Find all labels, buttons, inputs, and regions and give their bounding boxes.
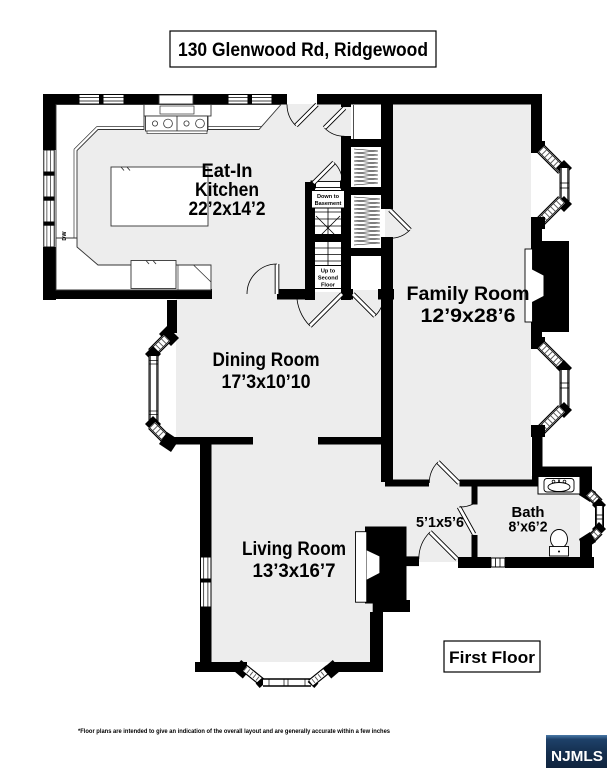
svg-text:DW: DW [62, 231, 68, 241]
svg-text:Basement: Basement [315, 201, 342, 207]
svg-text:Family Room: Family Room [407, 284, 530, 305]
svg-text:130 Glenwood Rd, Ridgewood: 130 Glenwood Rd, Ridgewood [178, 40, 428, 61]
svg-text:First Floor: First Floor [449, 649, 536, 667]
svg-text:5’1x5’6: 5’1x5’6 [416, 514, 464, 531]
svg-text:*Floor plans are intended to g: *Floor plans are intended to give an ind… [78, 729, 391, 735]
svg-text:Dining Room: Dining Room [213, 350, 320, 371]
svg-text:Second: Second [318, 276, 339, 282]
svg-text:22’2x14’2: 22’2x14’2 [189, 199, 266, 220]
svg-text:13’3x16’7: 13’3x16’7 [253, 561, 336, 582]
svg-text:Floor: Floor [321, 283, 336, 289]
svg-text:8’x6’2: 8’x6’2 [509, 519, 548, 536]
svg-text:17’3x10’10: 17’3x10’10 [222, 372, 311, 393]
svg-text:Eat-In: Eat-In [202, 161, 253, 182]
svg-text:Up to: Up to [321, 269, 336, 275]
svg-text:NJMLS: NJMLS [551, 748, 603, 765]
svg-text:12’9x28’6: 12’9x28’6 [421, 306, 516, 327]
svg-text:Kitchen: Kitchen [195, 180, 259, 201]
svg-text:Living Room: Living Room [242, 539, 346, 560]
svg-text:Down to: Down to [317, 194, 340, 200]
